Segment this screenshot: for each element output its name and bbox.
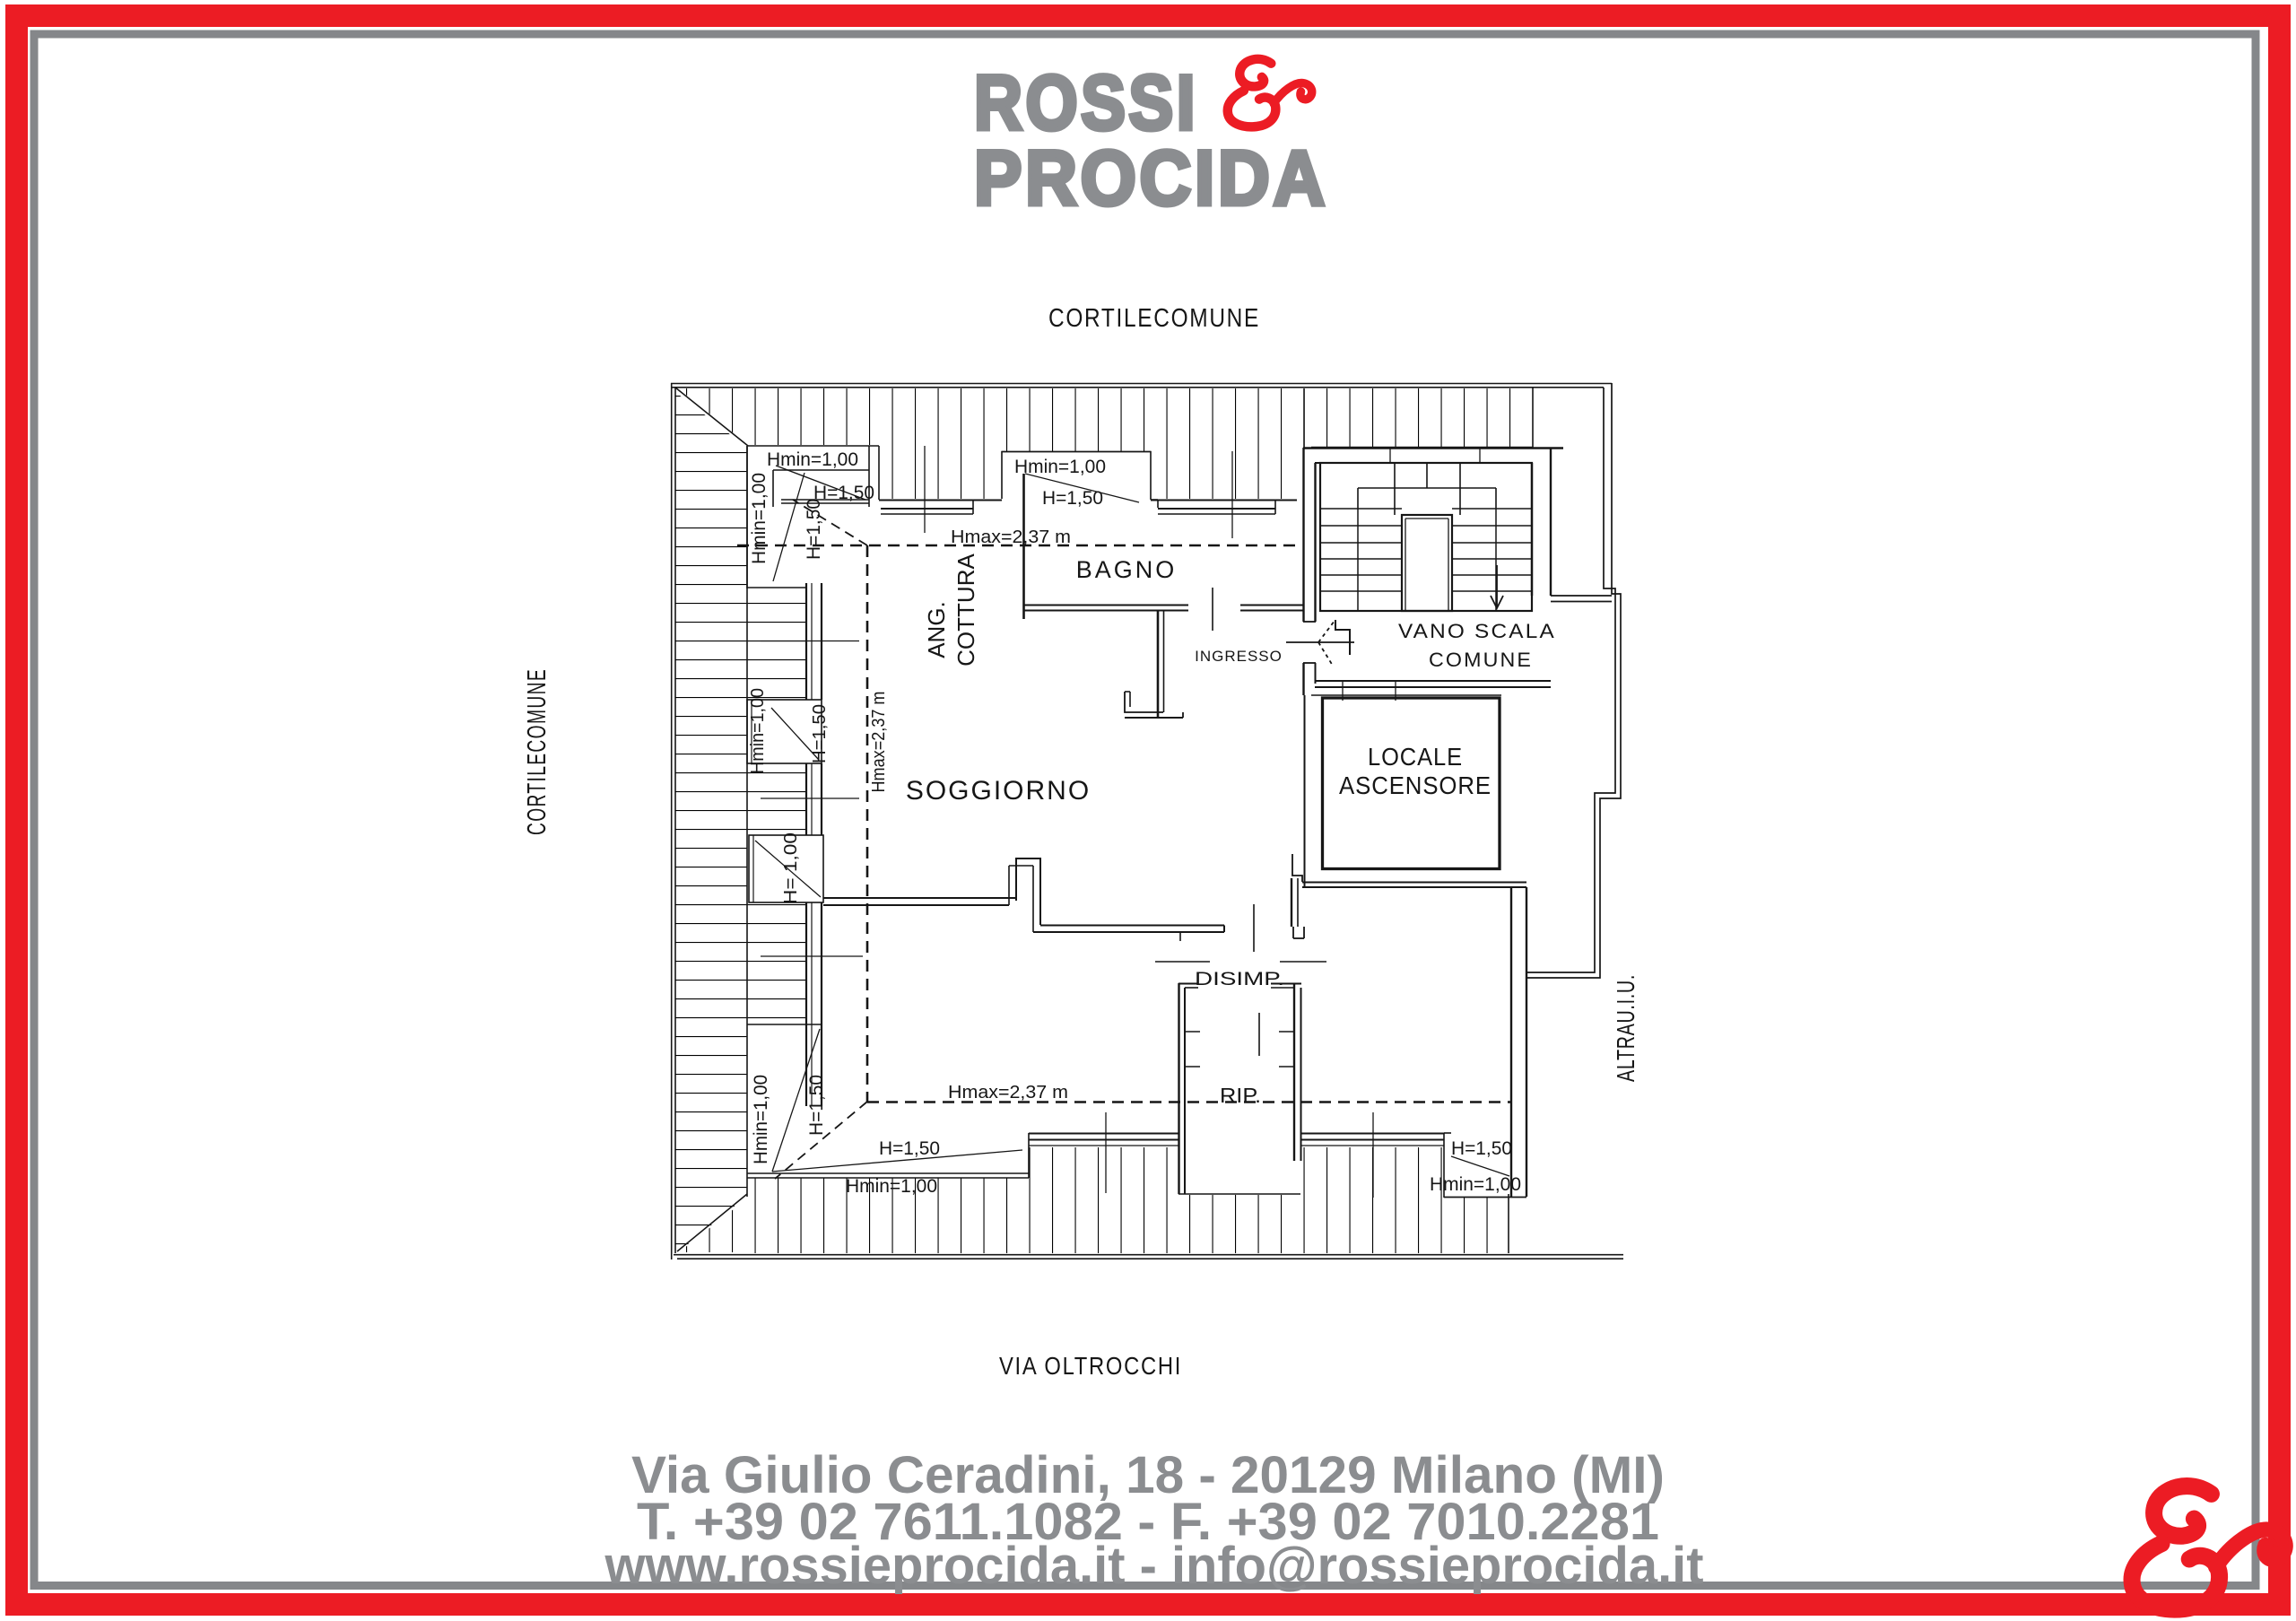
svg-text:PROCIDA: PROCIDA [974, 135, 1328, 222]
svg-text:DISIMP.: DISIMP. [1195, 969, 1284, 989]
svg-text:Hmax=2,37 m: Hmax=2,37 m [869, 692, 889, 793]
svg-text:H=1,50: H=1,50 [1451, 1138, 1512, 1159]
svg-text:Hmin=1,00: Hmin=1,00 [846, 1176, 937, 1197]
svg-text:CORTILECOMUNE: CORTILECOMUNE [1048, 304, 1260, 333]
svg-text:H=1,50: H=1,50 [1042, 488, 1103, 509]
svg-text:Hmin=1,00: Hmin=1,00 [767, 449, 858, 470]
svg-text:H=1,50: H=1,50 [806, 1075, 827, 1136]
svg-text:COMUNE: COMUNE [1429, 649, 1533, 671]
svg-text:INGRESSO: INGRESSO [1195, 648, 1283, 665]
svg-text:Hmin=1,00: Hmin=1,00 [749, 473, 770, 564]
svg-text:BAGNO: BAGNO [1076, 556, 1178, 583]
svg-text:COTTURA: COTTURA [952, 553, 979, 667]
svg-text:www.rossieprocida.it - info@ro: www.rossieprocida.it - info@rossieprocid… [604, 1537, 1704, 1595]
svg-text:VIA OLTROCCHI: VIA OLTROCCHI [999, 1352, 1182, 1380]
svg-text:H=1,50: H=1,50 [879, 1138, 940, 1159]
svg-text:LOCALE: LOCALE [1368, 743, 1463, 771]
svg-text:Hmax=2,37 m: Hmax=2,37 m [951, 527, 1071, 547]
svg-text:H=1,50: H=1,50 [810, 704, 830, 763]
svg-text:ASCENSORE: ASCENSORE [1339, 771, 1492, 799]
svg-text:Hmin=1,00: Hmin=1,00 [1014, 457, 1106, 477]
svg-text:Hmin=1,00: Hmin=1,00 [1430, 1174, 1521, 1195]
svg-text:ALTRAU.I.U.: ALTRAU.I.U. [1612, 974, 1639, 1082]
svg-text:ROSSI: ROSSI [974, 60, 1198, 146]
svg-text:CORTILECOMUNE: CORTILECOMUNE [523, 668, 552, 835]
svg-text:H= 1,00: H= 1,00 [781, 832, 801, 904]
svg-text:Hmin=1,00: Hmin=1,00 [751, 1075, 771, 1164]
svg-text:VANO SCALA: VANO SCALA [1398, 620, 1556, 642]
svg-text:ANG.: ANG. [923, 601, 950, 658]
svg-text:RIP.: RIP. [1220, 1084, 1261, 1107]
svg-text:SOGGIORNO: SOGGIORNO [906, 776, 1091, 806]
svg-text:Hmin=1,00: Hmin=1,00 [748, 688, 768, 774]
svg-text:Hmax=2,37 m: Hmax=2,37 m [948, 1083, 1068, 1102]
